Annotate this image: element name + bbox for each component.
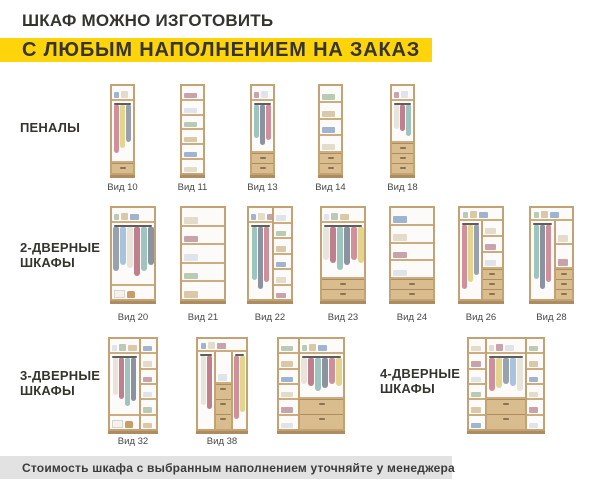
shelf-item [302,345,307,351]
shelf-compartment [279,398,298,413]
shelf-item [340,214,349,220]
handbag [125,421,133,428]
shelf-compartment [527,398,543,413]
wardrobe-vid-24 [389,206,435,304]
wardrobe-vid-14 [318,84,343,178]
garment [114,105,119,153]
shelf-compartment [527,383,543,398]
shelf-item [394,92,399,98]
shelf-item [393,252,407,258]
shelf-compartment [279,368,298,383]
shelf-item [143,407,152,412]
shelf-item [143,423,152,428]
garment [258,227,263,289]
garment [329,358,335,384]
shelf-item [130,214,139,220]
wardrobe-caption-vid-38: Вид 38 [180,436,264,447]
garment [358,227,364,263]
shelf-compartment [274,284,291,300]
shelf-item [318,345,327,351]
shelf-item [479,212,488,218]
shelf-item [281,407,293,412]
drawer [483,269,502,279]
drawer [392,143,413,153]
wardrobe-vid-22 [247,206,293,304]
shelf-item [324,214,329,220]
wardrobe-caption-vid-10: Вид 10 [94,182,151,193]
shelf-item [208,342,215,349]
shelf-compartment [279,414,298,429]
wardrobe-caption-vid-13: Вид 13 [234,182,291,193]
shelf-item [471,423,481,428]
top-shelf [531,208,572,221]
wardrobe-section [279,339,298,429]
shelf-item [505,345,514,351]
shelf-item [322,144,335,150]
shelf-compartment [141,352,156,367]
drawer [483,279,502,289]
shelf-item [184,108,197,113]
garment [131,358,136,401]
shelf-compartment [279,352,298,367]
shelf-item [393,216,407,222]
wardrobe-section [487,339,524,429]
wardrobe-section [392,86,413,173]
shelf-item [121,91,128,98]
shelf-item [276,246,286,251]
shelf-compartment [391,259,433,277]
wardrobe-section [320,86,341,173]
shelf-item [471,377,481,382]
drawer [252,163,273,173]
garment [148,227,154,265]
garment [351,227,357,260]
wardrobe-section [112,208,154,299]
wardrobe-caption-vid-14: Вид 14 [302,182,359,193]
garment [474,225,479,275]
garment [234,356,239,419]
shelf-compartment [320,118,341,135]
shelf-item [112,345,117,351]
shelf-compartment [556,243,572,267]
wardrobe-vid-32 [108,337,158,434]
drawer [487,399,524,414]
shelf-compartment [469,368,485,383]
shelf-compartment [556,221,572,243]
drawer [216,384,231,399]
shelf-item [184,167,197,172]
shelf-compartment [182,114,203,129]
drawer [391,289,433,299]
drawer [216,399,231,414]
shelf-compartment [182,128,203,143]
wardrobe-unlabeled-15 [467,337,545,434]
garment [540,225,545,289]
shelf-compartment [182,99,203,114]
garment [468,225,473,282]
wardrobe-section [322,208,364,299]
drawer [556,269,572,279]
shelf-item [485,228,496,234]
shelf-item [276,293,286,298]
garment [119,358,124,399]
shelf-item [143,361,152,366]
shelf-item [267,214,272,220]
group-label-4-door: 4-ДВЕРНЫЕ ШКАФЫ [380,366,460,396]
drawer [320,153,341,163]
shelf-item [218,374,227,381]
shelf-item [331,213,338,220]
garment [125,358,130,406]
shelf-compartment [274,268,291,284]
shelf-item [550,212,559,218]
shelf-item [489,345,494,351]
footer-note: Стоимость шкафа с выбранным наполнением … [22,461,455,475]
wardrobe-section [252,86,273,173]
garment [406,105,411,136]
wardrobe-section [531,221,554,299]
shelf-item [471,346,481,351]
wardrobe-section [527,339,543,429]
shelf-compartment [182,225,224,244]
top-shelf [198,339,246,352]
drawer [487,414,524,429]
shelf-compartment [182,143,203,158]
shelf-compartment [527,339,543,352]
top-shelf [460,208,502,221]
wardrobe-section [483,221,502,299]
shelf-item [184,236,198,243]
drawer [322,279,364,289]
drawer [483,289,502,299]
wardrobe-vid-20 [110,206,156,304]
promo-banner: С ЛЮБЫМ НАПОЛНЕНИЕМ НА ЗАКАЗ [0,38,432,62]
shelf-item [276,262,286,267]
shelf-compartment [391,224,433,242]
garment [462,225,467,289]
garment [141,227,147,271]
wardrobe-vid-18 [390,84,415,178]
wardrobe-caption-vid-11: Вид 11 [164,182,221,193]
wardrobe-section [216,352,231,429]
wardrobe-vid-23 [320,206,366,304]
wardrobe-section [249,208,272,299]
garment [337,227,343,270]
shelf-item [184,137,197,142]
shelf-item [184,273,198,280]
shelf-item [254,92,259,98]
garment [503,358,509,384]
shelf-item [201,343,206,349]
shelf-item [471,361,481,366]
shelf-compartment [320,134,341,151]
wardrobe-section [556,221,572,299]
wardrobe-caption-vid-32: Вид 32 [92,436,174,447]
shelf-item [529,346,539,351]
shelf-compartment [274,253,291,269]
wardrobe-vid-21 [180,206,226,304]
catalog-page: { "header": { "title": "ШКАФ МОЖНО ИЗГОТ… [0,0,600,500]
shelf-item [541,211,548,218]
drawer [391,279,433,289]
shelf-item [217,343,226,349]
garment [322,358,328,388]
shelf-compartment [320,86,341,101]
drawer [252,153,273,163]
garment [264,227,269,282]
wardrobe-unlabeled-14 [277,337,345,434]
shelf-compartment [182,243,224,262]
shelf-item [143,377,152,382]
garment [126,105,131,142]
handbag [127,291,135,298]
garment [301,358,307,384]
drawer [322,289,364,299]
garment [517,358,523,391]
garment [336,358,342,386]
shelf-compartment [141,339,156,352]
shelf-item [529,377,539,382]
shelf-item [184,122,197,127]
garment [308,358,314,386]
garment [489,358,495,391]
shelf-item [393,234,407,240]
shelf-compartment [469,352,485,367]
shelf-item [485,260,496,266]
shelf-compartment [141,398,156,413]
drawer [216,414,231,429]
garment [496,358,502,388]
group-label-2-door: 2-ДВЕРНЫЕ ШКАФЫ [20,240,100,270]
shelf-item [276,231,286,236]
wardrobe-section [112,86,133,173]
garment [252,227,257,280]
shelf-item [558,259,567,266]
wardrobe-caption-vid-24: Вид 24 [373,312,451,323]
shelf-item [529,392,539,397]
drawer [556,279,572,289]
shelf-item [143,346,152,351]
shelf-item [184,93,197,98]
shelf-item [401,91,408,98]
wardrobe-section [110,339,139,429]
shelf-item [184,291,198,298]
garment [394,105,399,129]
shelf-compartment [182,86,203,99]
wardrobe-vid-38 [196,337,248,434]
shelf-compartment [527,368,543,383]
garment [254,105,259,138]
shelf-item [322,94,335,100]
shelf-compartment [483,221,502,235]
shelf-item [485,244,496,250]
wardrobe-caption-vid-20: Вид 20 [94,312,172,323]
wardrobe-caption-vid-23: Вид 23 [304,312,382,323]
storage-box [114,290,125,298]
wardrobe-vid-26 [458,206,504,304]
shelf-compartment [320,101,341,118]
shelf-item [114,92,119,98]
drawer [556,289,572,299]
shelf-item [470,211,477,218]
shelf-item [184,152,197,157]
group-label-3-door: 3-ДВЕРНЫЕ ШКАФЫ [20,368,100,398]
garment [344,227,350,265]
shelf-item [393,270,407,276]
shelf-compartment [527,352,543,367]
garment [240,356,245,412]
shelf-item [322,127,335,133]
garment [510,358,516,386]
shelf-compartment [182,158,203,173]
shelf-compartment [391,208,433,224]
group-label-penaly: ПЕНАЛЫ [20,120,80,135]
drawer [300,414,343,429]
garment [546,225,551,282]
promo-banner-text: С ЛЮБЫМ НАПОЛНЕНИЕМ НА ЗАКАЗ [22,39,420,62]
shelf-item [529,361,539,366]
shelf-compartment [274,222,291,238]
wardrobe-section [460,221,481,299]
shelf-item [128,345,137,351]
wardrobe-vid-11 [180,84,205,178]
shelf-item [309,344,316,351]
shelf-compartment [279,339,298,352]
shelf-item [281,377,293,382]
drawer [392,163,413,173]
garment [400,105,405,131]
drawer [320,163,341,173]
drawer [300,399,343,414]
shelf-compartment [469,414,485,429]
shelf-item [184,217,198,224]
garment [534,225,539,279]
shelf-item [281,346,293,351]
shelf-compartment [182,208,224,225]
shelf-item [463,212,468,218]
shelf-compartment [469,383,485,398]
wardrobe-vid-28 [529,206,574,304]
drawer [112,163,133,173]
shelf-compartment [391,242,433,260]
shelf-item [471,407,481,412]
shelf-item [143,392,152,397]
shelf-item [529,407,539,412]
wardrobe-section [182,208,224,299]
shelf-compartment [141,383,156,398]
shelf-compartment [279,383,298,398]
wardrobe-vid-10 [110,84,135,178]
wardrobe-section [391,208,433,299]
shelf-item [119,344,126,351]
shelf-compartment [274,237,291,253]
shelf-compartment [483,251,502,267]
shelf-compartment [483,235,502,251]
storage-box [112,420,123,428]
garment [266,105,271,140]
garment [113,358,118,395]
shelf-item [258,213,265,220]
shelf-item [281,423,293,428]
garment [323,227,329,260]
shelf-compartment [469,398,485,413]
shelf-compartment [469,339,485,352]
wardrobe-caption-vid-22: Вид 22 [231,312,309,323]
wardrobe-caption-vid-26: Вид 26 [442,312,520,323]
garment [134,227,140,276]
garment [127,227,133,268]
page-title: ШКАФ МОЖНО ИЗГОТОВИТЬ [22,11,273,31]
garment [207,356,212,409]
shelf-compartment [141,414,156,429]
wardrobe-section [274,208,291,299]
shelf-compartment [527,414,543,429]
shelf-compartment [182,280,224,299]
shelf-item [281,361,293,366]
shelf-compartment [274,208,291,222]
shelf-item [114,214,119,220]
garment [113,227,119,271]
garment [260,105,265,145]
drawer [392,153,413,163]
shelf-item [121,213,128,220]
wardrobe-section [141,339,156,429]
shelf-item [322,111,335,117]
shelf-item [276,277,286,282]
shelf-item [261,91,268,98]
wardrobe-section [182,86,203,173]
wardrobe-section [300,339,343,429]
shelf-compartment [182,262,224,281]
shelf-item [558,235,567,242]
wardrobe-section [233,352,246,429]
shelf-item [276,215,286,220]
wardrobe-caption-vid-18: Вид 18 [374,182,431,193]
shelf-compartment [216,352,231,382]
shelf-item [529,423,539,428]
shelf-item [471,392,481,397]
shelf-item [251,214,256,220]
garment [120,105,125,148]
shelf-compartment [141,368,156,383]
garment [330,227,336,263]
wardrobe-caption-vid-28: Вид 28 [513,312,590,323]
garment [120,227,126,265]
shelf-item [281,392,293,397]
shelf-item [184,254,198,261]
garment [201,356,206,405]
wardrobe-vid-13 [250,84,275,178]
shelf-item [534,212,539,218]
wardrobe-section [198,352,214,429]
wardrobe-section [469,339,485,429]
garment [315,358,321,391]
shelf-item [496,344,503,351]
footer-note-band: Стоимость шкафа с выбранным наполнением … [0,456,452,479]
